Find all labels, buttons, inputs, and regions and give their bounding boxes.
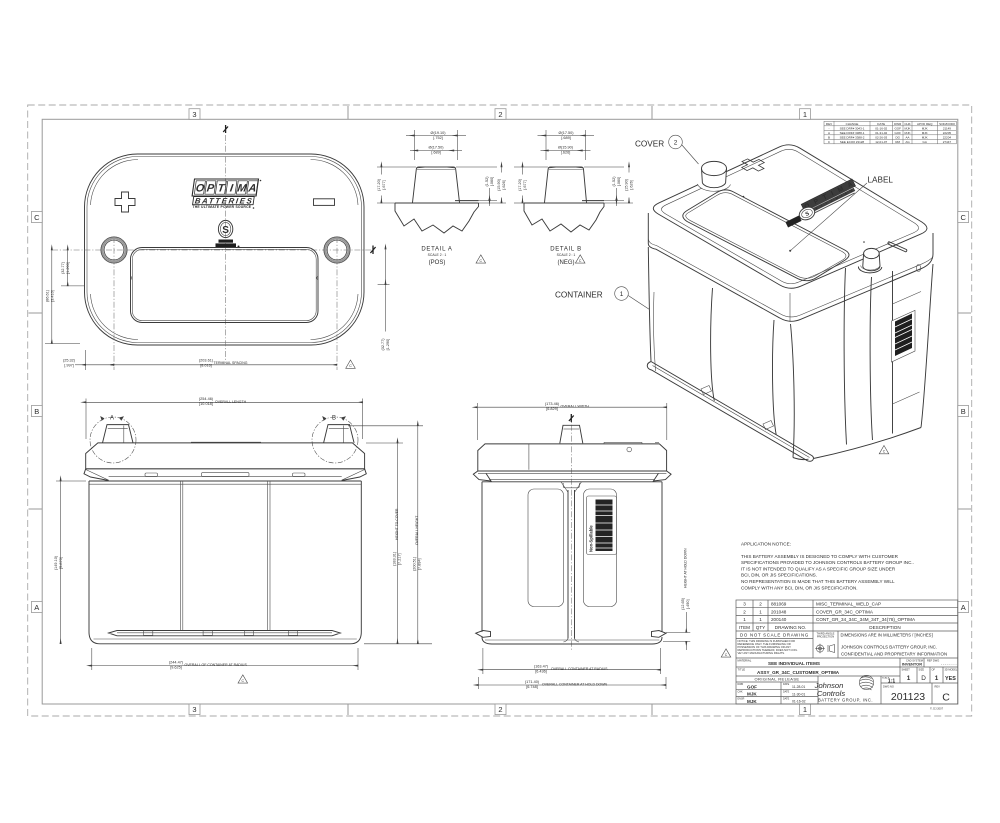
svg-text:-: -: [829, 126, 830, 130]
svg-text:MJK: MJK: [922, 131, 928, 135]
svg-text:OVERALL CONTAINER AT RADIUS: OVERALL CONTAINER AT RADIUS: [551, 667, 608, 671]
svg-text:A: A: [110, 416, 114, 422]
svg-text:Ø(17.50): Ø(17.50): [559, 131, 575, 135]
svg-text:[1.290]: [1.290]: [66, 262, 70, 274]
svg-text:BATTERY GROUP, INC.: BATTERY GROUP, INC.: [818, 698, 873, 703]
svg-text:ORIGINAL RELEASE: ORIGINAL RELEASE: [755, 677, 800, 682]
svg-text:02-26-03: 02-26-03: [875, 135, 887, 139]
svg-text:Ø(15.90): Ø(15.90): [558, 146, 574, 150]
svg-text:22204: 22204: [943, 135, 952, 139]
svg-text:NO REPRESENTATION IS MADE THAT: NO REPRESENTATION IS MADE THAT THIS BATT…: [741, 579, 895, 584]
svg-text:[.060]: [.060]: [490, 177, 494, 187]
svg-text:(15.90): (15.90): [625, 178, 629, 191]
svg-text:OF: OF: [932, 668, 936, 671]
svg-text:11-28-01: 11-28-01: [792, 685, 805, 689]
svg-text:REV: REV: [935, 685, 941, 689]
svg-text:COMPLY WITH ANY BCI, DIN, OR J: COMPLY WITH ANY BCI, DIN, OR JIS SPECIFI…: [741, 585, 858, 590]
svg-text:(254.46): (254.46): [199, 397, 214, 401]
svg-text:APPLICATION NOTICE:: APPLICATION NOTICE:: [741, 542, 791, 547]
svg-text:2: 2: [498, 705, 502, 714]
svg-text:[.689]: [.689]: [431, 151, 441, 155]
svg-text:DETAIL A: DETAIL A: [421, 247, 452, 253]
svg-text:3D MODEL: 3D MODEL: [945, 668, 958, 671]
svg-text:JOHNSON CONTROLS BATTERY GROUP: JOHNSON CONTROLS BATTERY GROUP, INC.: [841, 645, 937, 650]
svg-text:DATE: DATE: [783, 683, 790, 686]
svg-text:881069: 881069: [771, 602, 787, 607]
svg-text:C: C: [960, 213, 966, 222]
svg-text:SCALE 2 : 1: SCALE 2 : 1: [428, 253, 447, 257]
svg-text:GOF: GOF: [747, 684, 757, 689]
svg-text:SHEET: SHEET: [902, 668, 911, 671]
svg-text:REV: REV: [826, 122, 832, 126]
svg-text:HEIGHT AT HOLD DOWN: HEIGHT AT HOLD DOWN: [684, 548, 688, 588]
svg-text:SCALE 2 : 1: SCALE 2 : 1: [557, 253, 576, 257]
svg-text:[.752]: [.752]: [433, 136, 443, 140]
svg-text:[1.290]: [1.290]: [386, 339, 390, 351]
svg-text:1: 1: [759, 617, 762, 622]
svg-text:[10.018]: [10.018]: [199, 402, 213, 406]
svg-text:[.689]: [.689]: [561, 136, 571, 140]
svg-text:ITEM: ITEM: [739, 625, 750, 630]
svg-text:1: 1: [907, 675, 911, 682]
svg-text:Ø(19.10): Ø(19.10): [431, 131, 447, 135]
svg-text:B: B: [961, 407, 966, 416]
svg-text:SEE DRF# 3043-1: SEE DRF# 3043-1: [840, 126, 865, 130]
svg-text:B: B: [828, 135, 830, 139]
svg-text:(173.46): (173.46): [545, 402, 560, 406]
svg-text:DWG NO: DWG NO: [883, 685, 894, 689]
svg-text:MJK: MJK: [922, 135, 928, 139]
svg-text:OVERALL HEIGHT: OVERALL HEIGHT: [415, 516, 419, 545]
svg-text:[6.436]: [6.436]: [535, 670, 547, 674]
svg-text:A: A: [247, 183, 258, 195]
svg-text:1: 1: [743, 617, 746, 622]
svg-text:DWR: DWR: [738, 683, 744, 686]
svg-text:COVER_GR_34C_OPTIMA: COVER_GR_34C_OPTIMA: [816, 609, 874, 614]
svg-text:SEE DRF# 3388-2: SEE DRF# 3388-2: [840, 135, 865, 139]
svg-text:2: 2: [498, 110, 502, 119]
svg-text:IT IS NOT INTENDED TO QUALIFY: IT IS NOT INTENDED TO QUALIFY AS A SPECI…: [741, 566, 896, 571]
svg-text:3: 3: [743, 602, 746, 607]
svg-text:Ø(17.50): Ø(17.50): [429, 146, 445, 150]
svg-text:DATE: DATE: [783, 698, 790, 701]
svg-text:201048: 201048: [771, 609, 787, 614]
svg-text:1: 1: [803, 705, 807, 714]
svg-text:COVER: COVER: [635, 140, 664, 149]
svg-text:A: A: [961, 603, 966, 612]
svg-text:1: 1: [620, 291, 624, 298]
svg-text:[.997]: [.997]: [64, 364, 74, 368]
svg-text:(25.32): (25.32): [63, 359, 76, 363]
svg-text:12-01-07: 12-01-07: [875, 140, 887, 144]
svg-text:CONFIDENTIAL AND PROPRIETARY I: CONFIDENTIAL AND PROPRIETARY INFORMATION: [841, 652, 947, 657]
svg-text:DRAWING NO.: DRAWING NO.: [775, 625, 806, 630]
svg-text:ASSY_GR_34C_CUSTOMER_OPTIMA: ASSY_GR_34C_CUSTOMER_OPTIMA: [757, 670, 840, 675]
svg-text:[.626]: [.626]: [502, 180, 506, 190]
svg-text:BCI, DIN, OR JIS SPECIFICATION: BCI, DIN, OR JIS SPECIFICATIONS.: [741, 573, 817, 578]
svg-text:(POS): (POS): [429, 260, 446, 266]
svg-text:(12.65): (12.65): [681, 597, 685, 610]
svg-text:DETAIL B: DETAIL B: [550, 247, 582, 253]
svg-text:[8.016]: [8.016]: [200, 364, 212, 368]
svg-text:(183.31): (183.31): [392, 551, 396, 566]
svg-text:Non-Spillable: Non-Spillable: [588, 525, 593, 552]
svg-text:MJK: MJK: [747, 692, 757, 697]
svg-text:CONTAINER: CONTAINER: [555, 291, 603, 300]
svg-text:B: B: [34, 407, 39, 416]
svg-text:DATE: DATE: [783, 690, 790, 693]
svg-text:TITLE: TITLE: [738, 668, 746, 672]
svg-text:[.626]: [.626]: [630, 180, 634, 190]
svg-text:OVERALL LENGTH: OVERALL LENGTH: [215, 400, 247, 404]
svg-text:THE ULTIMATE POWER SOURCE: THE ULTIMATE POWER SOURCE: [193, 205, 252, 209]
svg-text:(32.77): (32.77): [61, 261, 65, 274]
svg-text:[7.217]: [7.217]: [397, 553, 401, 565]
svg-text:22205: 22205: [943, 131, 952, 135]
svg-text:21149: 21149: [943, 126, 951, 130]
svg-text:2: 2: [743, 609, 746, 614]
svg-text:[6.748]: [6.748]: [526, 685, 538, 689]
svg-text:LABEL: LABEL: [868, 176, 894, 185]
svg-text:ENGR: ENGR: [738, 698, 745, 701]
svg-text:1: 1: [803, 110, 807, 119]
svg-text:27447: 27447: [943, 140, 952, 144]
svg-text:201123: 201123: [891, 691, 925, 703]
svg-text:OVERALL CONTAINER AT HOLD DOWN: OVERALL CONTAINER AT HOLD DOWN: [542, 683, 607, 687]
svg-text:MJK: MJK: [905, 131, 911, 135]
svg-text:DATE: DATE: [877, 122, 885, 126]
svg-text:GA: GA: [923, 140, 927, 144]
svg-text:A: A: [828, 131, 830, 135]
svg-text:D: D: [921, 675, 926, 682]
svg-text:1: 1: [935, 675, 939, 682]
svg-text:HEIGHT TO-COVER: HEIGHT TO-COVER: [395, 508, 399, 540]
svg-text:1: 1: [759, 609, 762, 614]
svg-text:VEY ANY MANUFACTURING RIGHTS.: VEY ANY MANUFACTURING RIGHTS.: [738, 651, 785, 655]
svg-text:[3.410]: [3.410]: [51, 290, 55, 302]
svg-text:TERMINAL SPACING: TERMINAL SPACING: [214, 361, 248, 365]
svg-text:(244.47): (244.47): [169, 661, 184, 665]
svg-text:B: B: [332, 416, 336, 422]
svg-text:SEE DRF# 3388-1: SEE DRF# 3388-1: [840, 131, 865, 135]
svg-text:(32.77): (32.77): [381, 338, 385, 351]
svg-text:OVERALL WIDTH: OVERALL WIDTH: [561, 405, 590, 409]
svg-text:200140: 200140: [771, 617, 787, 622]
svg-text:- - - - - - - -: - - - - - - - -: [941, 662, 957, 666]
svg-text:DG: DG: [895, 135, 900, 139]
svg-text:(17.20): (17.20): [377, 178, 381, 191]
svg-text:A: A: [34, 603, 39, 612]
svg-text:(86.61): (86.61): [46, 289, 50, 302]
svg-text:RM: RM: [895, 140, 900, 144]
svg-text:[.060]: [.060]: [617, 177, 621, 187]
svg-text:MATERIAL: MATERIAL: [738, 659, 752, 663]
svg-text:Controls: Controls: [817, 689, 845, 698]
svg-text:SEE ECO# 23128: SEE ECO# 23128: [840, 140, 865, 144]
svg-text:DO NOT SCALE DRAWING: DO NOT SCALE DRAWING: [740, 633, 809, 638]
svg-text:THIS BATTERY ASSEMBLY IS DESIG: THIS BATTERY ASSEMBLY IS DESIGNED TO COM…: [741, 554, 899, 559]
svg-text:(1.52): (1.52): [485, 176, 489, 187]
svg-text:CHK: CHK: [904, 122, 910, 126]
svg-text:(NEG): (NEG): [558, 260, 575, 266]
svg-text:(163.47): (163.47): [534, 665, 549, 669]
svg-text:SPECIFICATIONS PROVIDED TO JOH: SPECIFICATIONS PROVIDED TO JOHNSON CONTR…: [741, 560, 914, 565]
svg-text:S: S: [222, 225, 229, 236]
svg-text:3: 3: [192, 110, 196, 119]
svg-text:[.677]: [.677]: [382, 180, 386, 190]
svg-text:OVERALL OF CONTAINER AT RADIUS: OVERALL OF CONTAINER AT RADIUS: [185, 663, 248, 667]
svg-text:3: 3: [192, 705, 196, 714]
svg-text:01-16-02: 01-16-02: [875, 126, 887, 130]
svg-text:APVD REQ: APVD REQ: [917, 122, 933, 126]
svg-text:[5.870]: [5.870]: [59, 557, 63, 569]
svg-text:2: 2: [674, 140, 678, 147]
svg-text:(149.10): (149.10): [54, 555, 58, 570]
svg-text:INVENTOR: INVENTOR: [902, 662, 922, 667]
svg-text:(1.52): (1.52): [612, 176, 616, 187]
svg-text:MJK: MJK: [905, 126, 911, 130]
svg-text:2: 2: [759, 602, 762, 607]
svg-text:GOF: GOF: [894, 126, 901, 130]
svg-text:C: C: [34, 213, 40, 222]
svg-text:[.490]: [.490]: [686, 600, 690, 610]
svg-text:MISC_TERMINAL_WELD_CAP: MISC_TERMINAL_WELD_CAP: [816, 602, 881, 607]
svg-text:[.626]: [.626]: [561, 151, 571, 155]
svg-text:© JCI 2007: © JCI 2007: [930, 707, 944, 711]
svg-text:(171.40): (171.40): [525, 680, 540, 684]
svg-text:CHANGE: CHANGE: [846, 122, 859, 126]
svg-text:DESCRIPTION: DESCRIPTION: [869, 625, 900, 630]
svg-text:1:1: 1:1: [888, 678, 895, 684]
svg-text:11-30-01: 11-30-01: [792, 692, 805, 696]
svg-text:DIMENSIONS ARE IN MILLIMETERS: DIMENSIONS ARE IN MILLIMETERS / [INCHES]: [841, 633, 933, 638]
svg-text:CONT_GR_34_34C_34M_34T_34(78)_: CONT_GR_34_34C_34M_34T_34(78)_OPTIMA: [816, 617, 916, 622]
svg-text:SEE INDIVIDUAL ITEMS: SEE INDIVIDUAL ITEMS: [768, 661, 820, 666]
svg-text:[9.625]: [9.625]: [170, 666, 182, 670]
svg-text:PROJECTION: PROJECTION: [817, 635, 834, 639]
svg-text:MJK: MJK: [922, 126, 928, 130]
svg-text:AG: AG: [905, 140, 910, 144]
svg-text:SOD/DOD#: SOD/DOD#: [939, 122, 955, 126]
svg-text:(200.51): (200.51): [413, 556, 417, 571]
svg-text:01-16-02: 01-16-02: [792, 700, 806, 704]
svg-text:(17.20): (17.20): [518, 178, 522, 191]
svg-text:[.677]: [.677]: [523, 180, 527, 190]
svg-text:CHK: CHK: [738, 690, 743, 693]
svg-text:MJK: MJK: [747, 699, 757, 704]
svg-text:REF DWG: REF DWG: [927, 659, 939, 663]
svg-text:YES: YES: [945, 676, 956, 682]
svg-text:(203.61): (203.61): [199, 359, 214, 363]
svg-text:GOF: GOF: [894, 131, 901, 135]
svg-text:SIZE: SIZE: [919, 668, 925, 671]
svg-text:(15.90): (15.90): [497, 178, 501, 191]
svg-text:DWR: DWR: [894, 122, 902, 126]
svg-text:[6.829]: [6.829]: [546, 407, 558, 411]
svg-text:[7.894]: [7.894]: [418, 558, 422, 570]
svg-text:AA: AA: [905, 135, 909, 139]
svg-text:QTY: QTY: [756, 625, 765, 630]
svg-text:01-31-02: 01-31-02: [875, 131, 887, 135]
svg-text:C: C: [942, 691, 950, 703]
